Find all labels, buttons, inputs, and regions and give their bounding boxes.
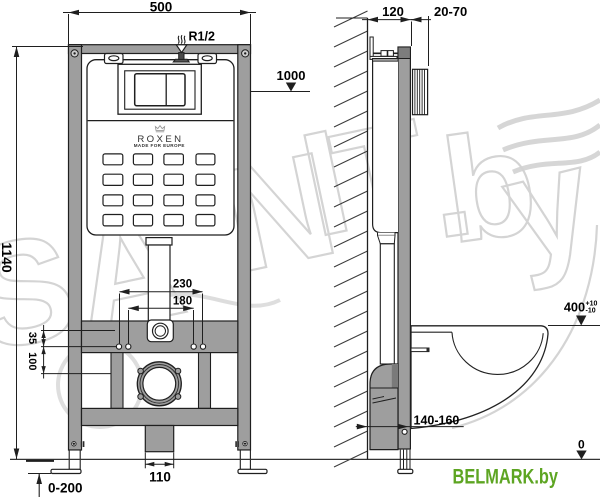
- svg-text:MADE FOR EUROPE: MADE FOR EUROPE: [134, 143, 185, 148]
- svg-text:1000: 1000: [277, 68, 306, 83]
- svg-text:100: 100: [26, 352, 38, 370]
- svg-text:120: 120: [382, 4, 404, 19]
- svg-text:+10: +10: [586, 301, 598, 308]
- svg-text:BELMARK.by: BELMARK.by: [453, 465, 559, 488]
- svg-text:0-200: 0-200: [48, 481, 83, 496]
- svg-text:230: 230: [173, 279, 192, 291]
- svg-text:400: 400: [564, 300, 585, 315]
- svg-text:1140: 1140: [0, 242, 15, 273]
- svg-text:20-70: 20-70: [434, 4, 467, 19]
- svg-text:-10: -10: [586, 308, 596, 315]
- svg-text:500: 500: [150, 0, 173, 14]
- svg-text:0: 0: [578, 438, 585, 452]
- svg-text:110: 110: [149, 470, 171, 485]
- svg-text:180: 180: [173, 296, 192, 308]
- svg-text:35: 35: [26, 332, 38, 344]
- svg-text:R1/2: R1/2: [189, 29, 215, 43]
- svg-text:140-160: 140-160: [414, 414, 460, 428]
